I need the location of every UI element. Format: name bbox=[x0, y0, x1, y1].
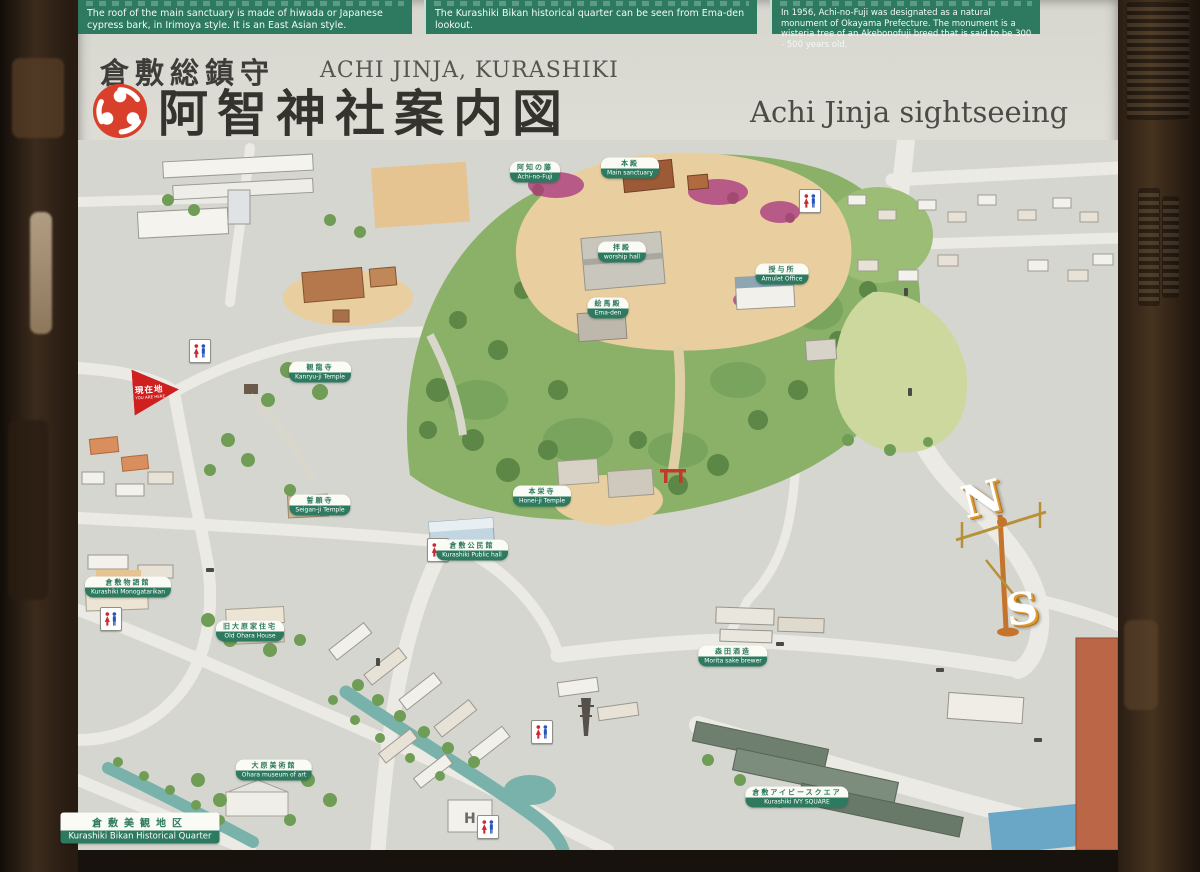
toilet-icon bbox=[799, 189, 821, 213]
toilet-icon bbox=[477, 815, 499, 839]
header-note-roof: The roof of the main sanctuary is made o… bbox=[78, 0, 412, 34]
map-label-old-ohara-house: 旧大原家住宅Old Ohara House bbox=[216, 621, 284, 642]
wood-stick bbox=[30, 212, 52, 334]
hotel-letter: H bbox=[464, 811, 476, 827]
hanging-wood-tag bbox=[1162, 196, 1180, 298]
illustrated-map: H bbox=[78, 140, 1118, 850]
map-label-ohara-museum: 大原美術館Ohara museum of art bbox=[236, 760, 312, 781]
map-label-worship-hall: 拝殿worship hall bbox=[598, 242, 646, 263]
header-note-wisteria: In 1956, Achi-no-Fuji was designated as … bbox=[770, 0, 1040, 34]
map-label-public-hall: 倉敷公民館Kurashiki Public hall bbox=[436, 540, 508, 561]
wood-grain bbox=[8, 420, 48, 600]
toilet-icon bbox=[189, 339, 211, 363]
map-label-ivy-square: 倉敷アイビースクエアKurashiki IVY SQUARE bbox=[745, 787, 848, 808]
toilet-icon bbox=[531, 720, 553, 744]
map-label-monogatarikan: 倉敷物語館Kurashiki Monogatarikan bbox=[85, 577, 171, 598]
carved-plaque bbox=[1126, 2, 1190, 120]
toilet-icon bbox=[100, 607, 122, 631]
canal-pond bbox=[504, 775, 556, 805]
hanging-wood-tag bbox=[1138, 188, 1160, 306]
you-are-here-marker: 現在地 YOU ARE HERE bbox=[131, 366, 180, 415]
map-signboard: The roof of the main sanctuary is made o… bbox=[78, 0, 1118, 850]
map-label-kanryuji: 観龍寺Kanryu-ji Temple bbox=[289, 362, 351, 383]
map-label-amulet-office: 授与所Amulet Office bbox=[756, 264, 809, 285]
wood-grain bbox=[12, 58, 64, 138]
signboard-photo: The roof of the main sanctuary is made o… bbox=[0, 0, 1200, 872]
compass-south-letter: S bbox=[1003, 582, 1042, 637]
map-label-seiganji: 誓願寺Seigan-ji Temple bbox=[289, 495, 350, 516]
map-label-honeiji: 本栄寺Honei-ji Temple bbox=[513, 486, 571, 507]
wood-grain bbox=[1124, 620, 1158, 710]
map-label-achi-no-fuji: 阿知の藤Achi-no-Fuji bbox=[510, 162, 560, 183]
title-main: 阿智神社案内図 bbox=[158, 74, 571, 146]
wood-frame-left bbox=[0, 0, 78, 872]
wood-frame-right bbox=[1118, 0, 1200, 872]
tomoe-crest-icon bbox=[91, 82, 149, 140]
header-note-lookout: The Kurashiki Bikan historical quarter c… bbox=[424, 0, 757, 34]
map-label-main-sanctuary: 本殿Main sanctuary bbox=[601, 158, 659, 179]
map-label-bikan-quarter: 倉敷美観地区Kurashiki Bikan Historical Quarter bbox=[60, 813, 219, 844]
kanryuji-buildings bbox=[283, 267, 413, 326]
map-label-morita-sake: 森田酒造Morita sake brewer bbox=[698, 646, 767, 667]
map-label-ema-den: 絵馬殿Ema-den bbox=[588, 298, 629, 319]
